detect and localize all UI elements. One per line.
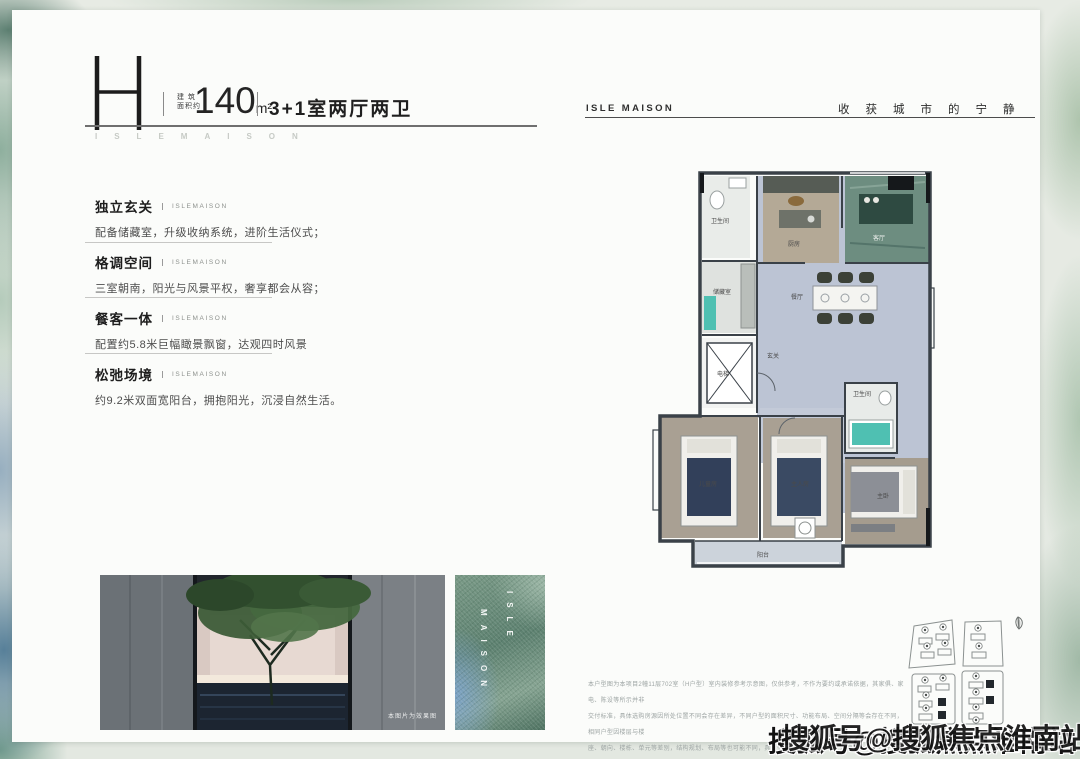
header-divider-1 — [163, 92, 164, 116]
header-divider-2 — [257, 92, 258, 116]
glass-text-isle: ISLE — [505, 591, 514, 645]
feature-title: 独立玄关 — [95, 196, 153, 216]
room-label-kids: 儿童房 — [699, 480, 717, 488]
brand-letters: ISLEMAISON — [95, 132, 315, 141]
room-label-bath: 卫生间 — [711, 217, 729, 225]
watermark-text: 搜狐号@搜狐焦点淮南站 — [781, 717, 1080, 757]
plan-letter-h — [92, 54, 144, 132]
north-arrow-icon — [1016, 617, 1022, 629]
feature-desc: 三室朝南，阳光与风景平权，奢享都会从容； — [95, 280, 455, 296]
feature-title: 松弛场境 — [95, 364, 153, 384]
courtyard-photo: 本图片为效果图 — [100, 575, 445, 730]
right-brand: ISLE MAISON — [586, 103, 674, 114]
floorplan: 卫生间 储藏室 电梯 厨房 客厅 餐厅 玄关 儿童房 主人房 主卧 阳台 卫生间 — [645, 168, 935, 573]
room-label-bath2: 卫生间 — [853, 390, 871, 398]
feature-block-3: 餐客一体ISLEMAISON 配置约5.8米巨幅瞰景飘窗，达观四时风景 — [95, 308, 455, 352]
room-label-balcony: 阳台 — [757, 551, 769, 559]
feature-title: 餐客一体 — [95, 308, 153, 328]
site-plan — [905, 608, 1033, 728]
feature-tag: ISLEMAISON — [162, 259, 228, 266]
header-rule — [85, 125, 537, 127]
glass-brand-panel: ISLE MAISON — [455, 575, 545, 730]
disclaimer-line: 本户型图为本项目2幢11层702室（H户型）室内装修参考示意图，仅供参考，不作为… — [588, 677, 908, 709]
feature-divider-1 — [85, 242, 272, 243]
feature-divider-3 — [85, 353, 272, 354]
area-value: 140m² — [194, 80, 272, 122]
feature-desc: 配备储藏室，升级收纳系统，进阶生活仪式； — [95, 224, 455, 240]
feature-desc: 配置约5.8米巨幅瞰景飘窗，达观四时风景 — [95, 336, 455, 352]
room-label-master: 主卧 — [877, 492, 889, 500]
room-label-second: 主人房 — [791, 480, 809, 488]
floorplan-drawing: 卫生间 储藏室 电梯 厨房 客厅 餐厅 玄关 儿童房 主人房 主卧 阳台 卫生间 — [645, 168, 935, 573]
feature-desc: 约9.2米双面宽阳台，拥抱阳光，沉浸自然生活。 — [95, 392, 455, 408]
glass-text-maison: MAISON — [479, 609, 488, 695]
feature-block-2: 格调空间ISLEMAISON 三室朝南，阳光与风景平权，奢享都会从容； — [95, 252, 455, 296]
room-label-elevator: 电梯 — [717, 370, 729, 378]
right-slogan: 收获城市的宁静 — [838, 101, 1031, 117]
feature-tag: ISLEMAISON — [162, 371, 228, 378]
feature-block-1: 独立玄关ISLEMAISON 配备储藏室，升级收纳系统，进阶生活仪式； — [95, 196, 455, 240]
room-label-storage: 储藏室 — [713, 288, 731, 296]
area-number: 140 — [194, 80, 256, 121]
room-label-dining: 餐厅 — [791, 293, 803, 301]
feature-block-4: 松弛场境ISLEMAISON 约9.2米双面宽阳台，拥抱阳光，沉浸自然生活。 — [95, 364, 455, 408]
feature-title: 格调空间 — [95, 252, 153, 272]
layout-text: 3+1室两厅两卫 — [269, 94, 412, 121]
watermark: 搜狐号@搜狐焦点淮南站 搜狐号@搜狐焦点淮南站 — [768, 714, 1080, 756]
feature-divider-2 — [85, 297, 272, 298]
feature-tag: ISLEMAISON — [162, 203, 228, 210]
room-label-hall: 玄关 — [767, 352, 779, 360]
poster-canvas: 建 筑 面积约 140m² 3+1室两厅两卫 ISLEMAISON 独立玄关IS… — [0, 0, 1080, 759]
feature-tag: ISLEMAISON — [162, 315, 228, 322]
right-rule — [585, 117, 1035, 118]
photo-caption: 本图片为效果图 — [388, 711, 437, 720]
room-label-living: 客厅 — [873, 234, 885, 242]
room-label-kitchen: 厨房 — [788, 240, 800, 248]
